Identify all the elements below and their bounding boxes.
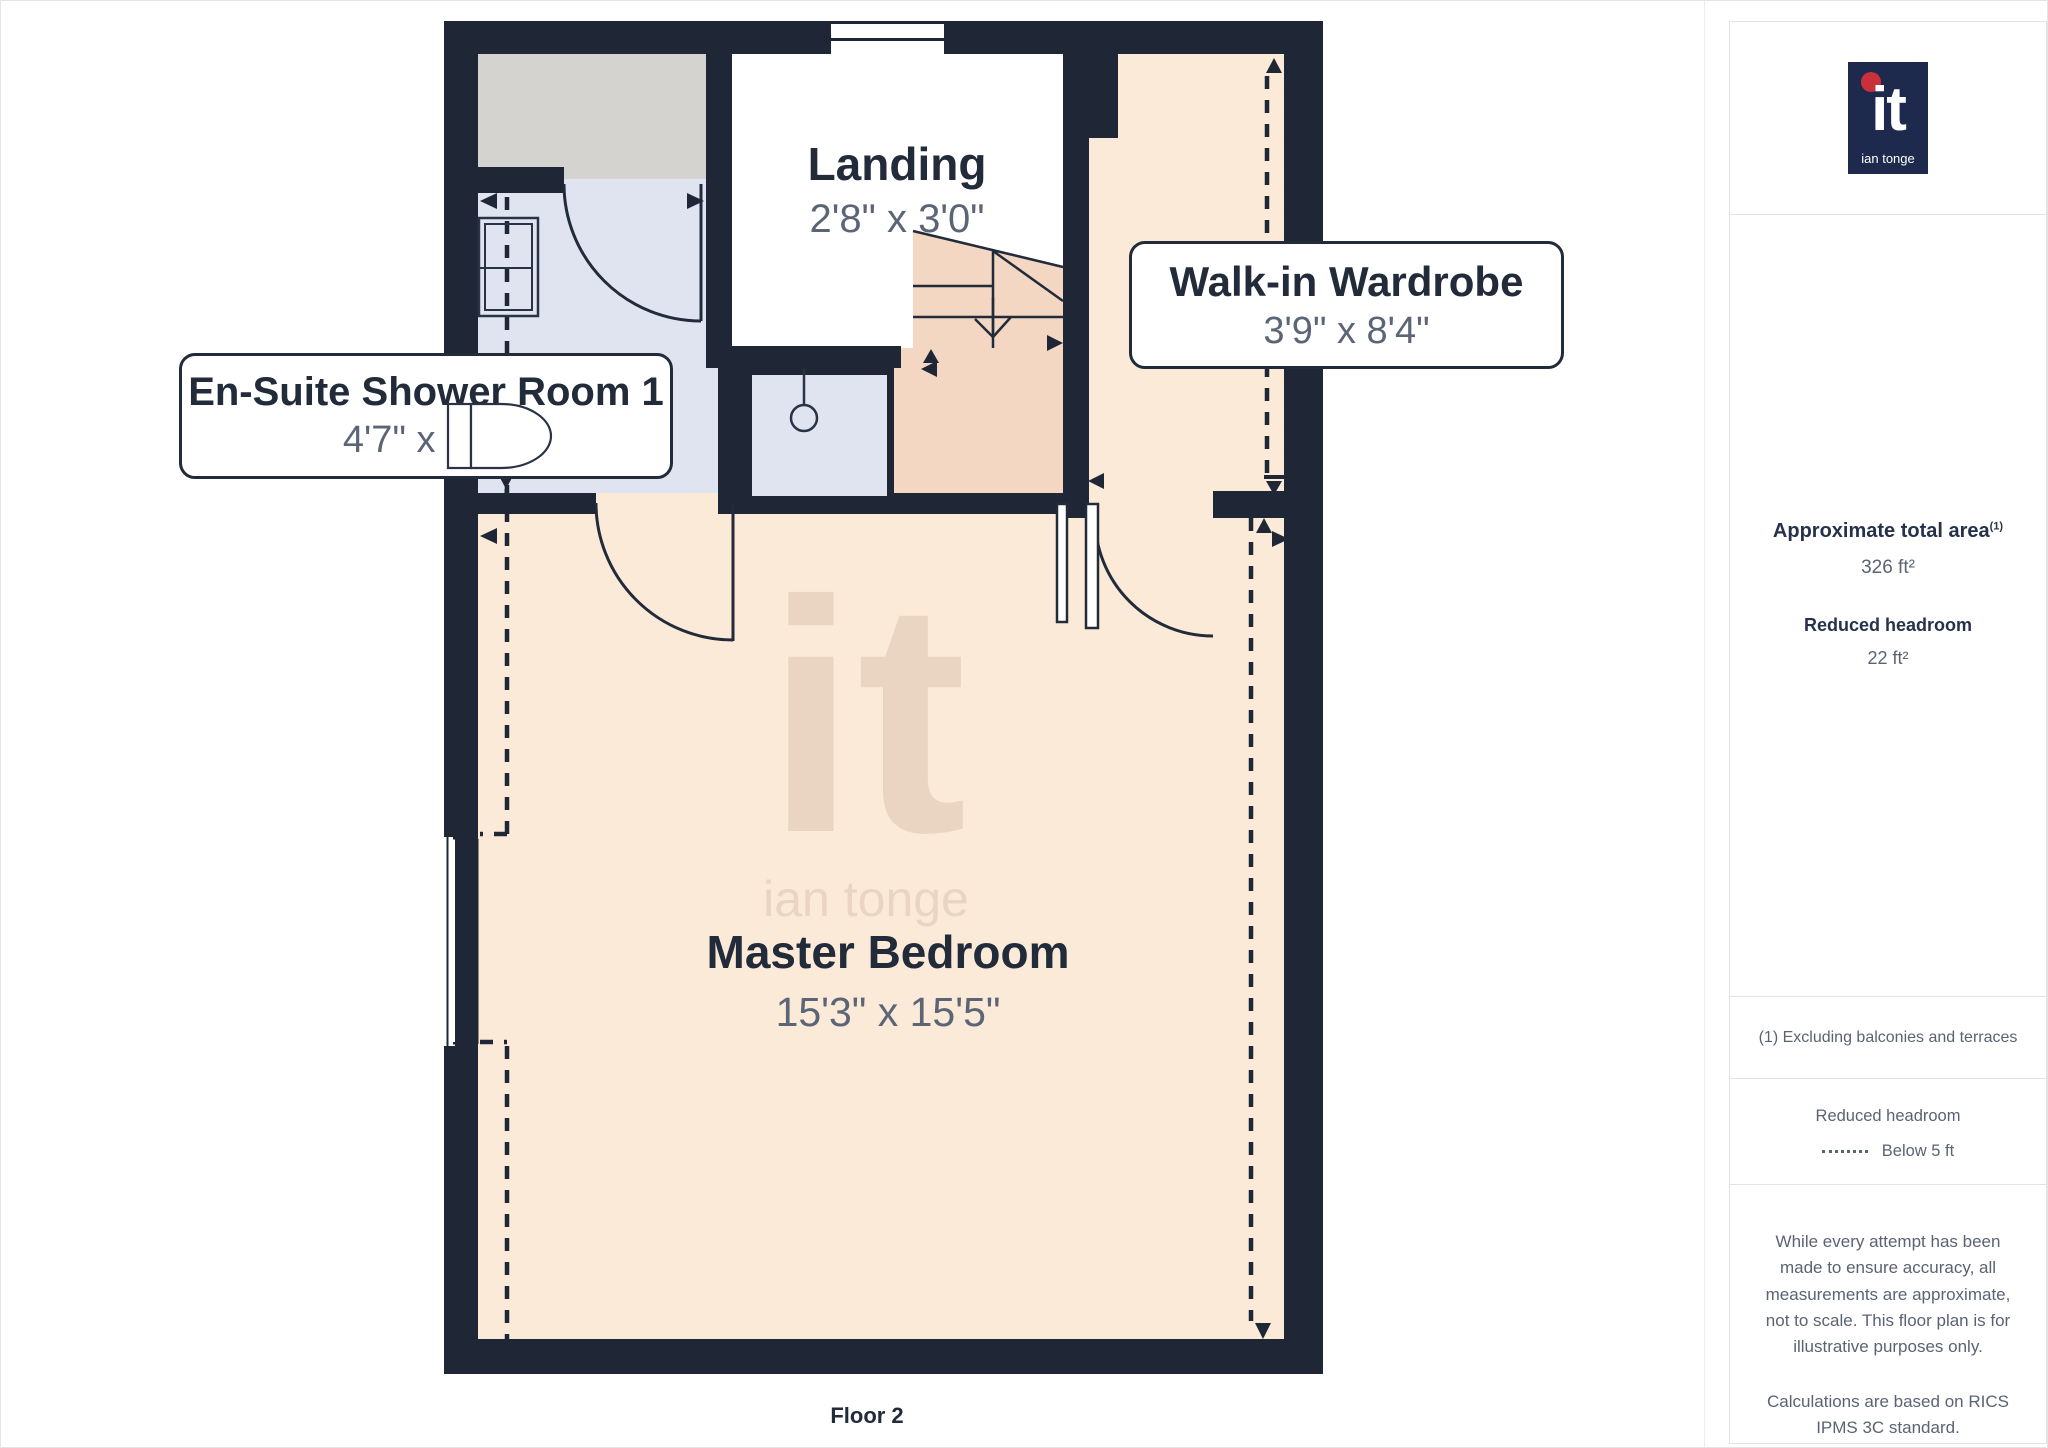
room-name: Master Bedroom (678, 925, 1098, 979)
void-area (478, 54, 706, 179)
door-gap-corridor (1088, 491, 1213, 518)
area-summary-section: Approximate total area(1) 326 ft² Reduce… (1730, 215, 2046, 997)
legend-label: Below 5 ft (1882, 1142, 1954, 1160)
total-area-value: 326 ft² (1730, 557, 2046, 579)
total-area-title: Approximate total area(1) (1730, 520, 2046, 543)
legend-title: Reduced headroom (1730, 1107, 2046, 1126)
watermark: it ian tonge (763, 532, 969, 927)
dotted-line-icon (1822, 1150, 1868, 1153)
floorplan-page: it ian tonge (0, 0, 2048, 1448)
info-sidebar: it ian tonge Approximate total area(1) 3… (1729, 21, 2047, 1444)
room-label-landing: Landing 2'8" x 3'0" (707, 137, 1087, 242)
room-name: Landing (707, 137, 1087, 191)
disclaimer-text-1: While every attempt has been made to ens… (1754, 1229, 2022, 1361)
watermark-big: it (765, 532, 967, 901)
logo-monogram: it (1848, 70, 1928, 150)
stair-corridor-floor (894, 348, 1063, 493)
room-name: En-Suite Shower Room 1 (182, 370, 670, 415)
room-dimensions: 15'3" x 15'5" (678, 989, 1098, 1036)
floor-label: Floor 2 (767, 1403, 967, 1429)
reduced-headroom-title: Reduced headroom (1730, 615, 2046, 636)
reduced-headroom-value: 22 ft² (1730, 648, 2046, 669)
legend-row: Below 5 ft (1730, 1142, 2046, 1161)
shower-tray (752, 375, 887, 496)
plan-panel-separator (1704, 1, 1705, 1447)
room-dimensions: 3'9" x 8'4" (1132, 310, 1561, 353)
watermark-small: ian tonge (763, 871, 969, 927)
room-dimensions: 4'7" x 5'9" (182, 419, 670, 462)
logo-agency-name: ian tonge (1848, 151, 1928, 166)
door-leaf-bedroom (1086, 504, 1098, 628)
agency-logo-section: it ian tonge (1730, 22, 2046, 215)
door-leaf-bedroom-2 (1057, 504, 1067, 622)
agency-logo: it ian tonge (1848, 62, 1928, 174)
room-label-walk-in-wardrobe: Walk-in Wardrobe 3'9" x 8'4" (1129, 241, 1564, 369)
total-area-footnote-marker: (1) (1990, 520, 2003, 532)
footnote-text: (1) Excluding balconies and terraces (1759, 1029, 2018, 1047)
disclaimer-section: While every attempt has been made to ens… (1730, 1185, 2046, 1448)
room-label-ensuite: En-Suite Shower Room 1 4'7" x 5'9" (179, 353, 673, 479)
room-dimensions: 2'8" x 3'0" (707, 197, 1087, 242)
footnote-section: (1) Excluding balconies and terraces (1730, 997, 2046, 1079)
legend-section: Reduced headroom Below 5 ft (1730, 1079, 2046, 1185)
room-name: Walk-in Wardrobe (1132, 258, 1561, 306)
room-label-master-bedroom: Master Bedroom 15'3" x 15'5" (678, 925, 1098, 1036)
disclaimer-text-2: Calculations are based on RICS IPMS 3C s… (1754, 1389, 2022, 1442)
total-area-title-text: Approximate total area (1773, 520, 1990, 542)
